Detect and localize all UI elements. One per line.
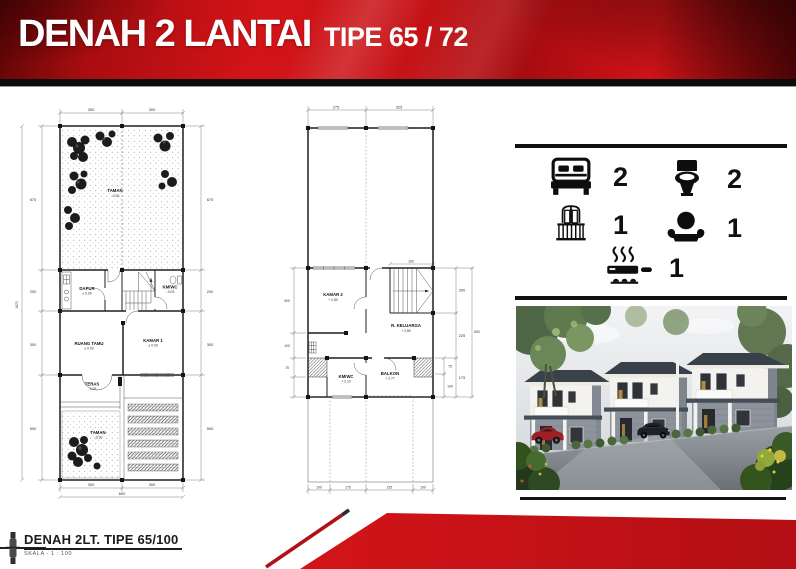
plan1-stairs bbox=[122, 272, 155, 310]
room-level: - 0.03 bbox=[166, 290, 175, 294]
floorplan-lantai-2: 275 325 160 300 100 75 75 100 200 225 17… bbox=[278, 101, 484, 507]
room-label: TAMAN bbox=[90, 430, 105, 435]
dim-label: 100 bbox=[420, 485, 426, 489]
plan2-dimensions: 275 325 160 300 100 75 75 100 200 225 17… bbox=[284, 104, 480, 494]
spec-item-armchair: 1 bbox=[665, 208, 742, 248]
dim-label: 300 bbox=[149, 107, 156, 112]
dim-label: 300 bbox=[30, 342, 37, 347]
dim-label: 200 bbox=[459, 288, 466, 293]
house-render-image bbox=[516, 306, 792, 490]
dim-label: 200 bbox=[30, 289, 37, 294]
toilet-count: 2 bbox=[727, 164, 742, 195]
dim-label: 175 bbox=[459, 375, 466, 380]
dim-label: 670 bbox=[30, 197, 37, 202]
dim-label: 670 bbox=[207, 197, 214, 202]
room-level: + 2.80 bbox=[401, 329, 411, 333]
room-level: ± 0.00 bbox=[82, 292, 92, 296]
room-label: BALKON bbox=[381, 371, 399, 376]
room-label: R. KELUARGA bbox=[391, 323, 421, 328]
bed-count: 2 bbox=[613, 162, 628, 193]
dim-label: 325 bbox=[396, 104, 403, 109]
room-label: KAMAR 1 bbox=[143, 338, 163, 343]
plan1-teras bbox=[60, 375, 122, 409]
balcony-count: 1 bbox=[613, 210, 628, 241]
spec-item-balcony: 1 bbox=[549, 204, 628, 246]
dim-label: 275 bbox=[333, 104, 340, 109]
spec-item-bed: 2 bbox=[549, 156, 628, 198]
dim-label: 600 bbox=[474, 330, 480, 334]
plan1-garden-back: TAMAN - 0.05 bbox=[62, 127, 182, 269]
dim-label: 75 bbox=[448, 365, 452, 369]
divider-bottom bbox=[515, 296, 787, 300]
dim-label: 200 bbox=[207, 289, 214, 294]
balcony-icon bbox=[549, 204, 593, 246]
room-level: - 0.30 bbox=[94, 436, 103, 440]
room-label: RUANG TAMU bbox=[74, 341, 103, 346]
room-level: - 0.05 bbox=[111, 194, 120, 198]
dim-label: 75 bbox=[285, 366, 289, 370]
room-label: DAPUR bbox=[79, 286, 95, 291]
dim-label: 100 bbox=[447, 385, 453, 389]
page-subtitle: TIPE 65 / 72 bbox=[324, 24, 468, 51]
room-level: - 0.05 bbox=[88, 387, 97, 391]
divider-top bbox=[515, 144, 787, 148]
dim-label: 225 bbox=[459, 333, 466, 338]
floorplan-lantai-1: 300 300 670 200 300 500 1670 670 200 300… bbox=[12, 96, 230, 520]
room-label: TAMAN bbox=[107, 188, 122, 193]
dim-label: 225 bbox=[387, 485, 393, 489]
dim-label: 300 bbox=[149, 482, 156, 487]
stove-count: 1 bbox=[669, 253, 684, 284]
dim-label: 100 bbox=[284, 344, 290, 348]
room-label: KM/WC bbox=[338, 374, 353, 379]
armchair-count: 1 bbox=[727, 213, 742, 244]
dim-label: 100 bbox=[316, 485, 322, 489]
spec-item-toilet: 2 bbox=[667, 158, 742, 200]
header-banner: DENAH 2 LANTAI TIPE 65 / 72 bbox=[0, 0, 796, 79]
dim-label: 500 bbox=[207, 426, 214, 431]
slide: DENAH 2 LANTAI TIPE 65 / 72 300 300 670 … bbox=[0, 0, 796, 569]
bed-icon bbox=[549, 156, 593, 198]
stove-icon bbox=[605, 246, 653, 290]
red-corner-decoration bbox=[0, 507, 796, 569]
dim-label: 300 bbox=[88, 482, 95, 487]
dim-label: 300 bbox=[284, 299, 290, 303]
plan2-walls bbox=[308, 127, 433, 482]
spec-item-stove: 1 bbox=[605, 246, 684, 290]
plan1-wc-fixtures bbox=[170, 276, 182, 284]
dim-label: 300 bbox=[207, 342, 214, 347]
room-label: TERAS bbox=[85, 382, 100, 387]
dim-label: 600 bbox=[119, 491, 126, 496]
header-divider bbox=[0, 79, 796, 87]
room-level: + 2.10 bbox=[341, 380, 351, 384]
room-label: KM/WC bbox=[162, 285, 177, 290]
plan1-garden-front: TAMAN - 0.30 bbox=[62, 411, 120, 478]
armchair-icon bbox=[665, 208, 707, 248]
room-level: + 2.77 bbox=[385, 377, 395, 381]
dim-label: 1670 bbox=[15, 301, 19, 309]
plan2-stairs bbox=[390, 268, 433, 313]
plan1-kitchen-counter bbox=[62, 272, 71, 309]
toilet-icon bbox=[667, 158, 707, 200]
dim-label: 175 bbox=[345, 485, 351, 489]
room-label: KAMAR 2 bbox=[323, 292, 343, 297]
room-level: ± 0.00 bbox=[148, 344, 158, 348]
room-level: + 2.80 bbox=[328, 298, 338, 302]
plan1-carport bbox=[124, 375, 183, 480]
page-title: DENAH 2 LANTAI bbox=[18, 15, 311, 53]
spec-panel: 2 2 1 bbox=[513, 144, 792, 300]
room-level: ± 0.00 bbox=[84, 347, 94, 351]
dim-label: 300 bbox=[88, 107, 95, 112]
divider-render-bottom bbox=[520, 497, 786, 500]
dim-label: 160 bbox=[408, 259, 414, 263]
dim-label: 500 bbox=[30, 426, 37, 431]
